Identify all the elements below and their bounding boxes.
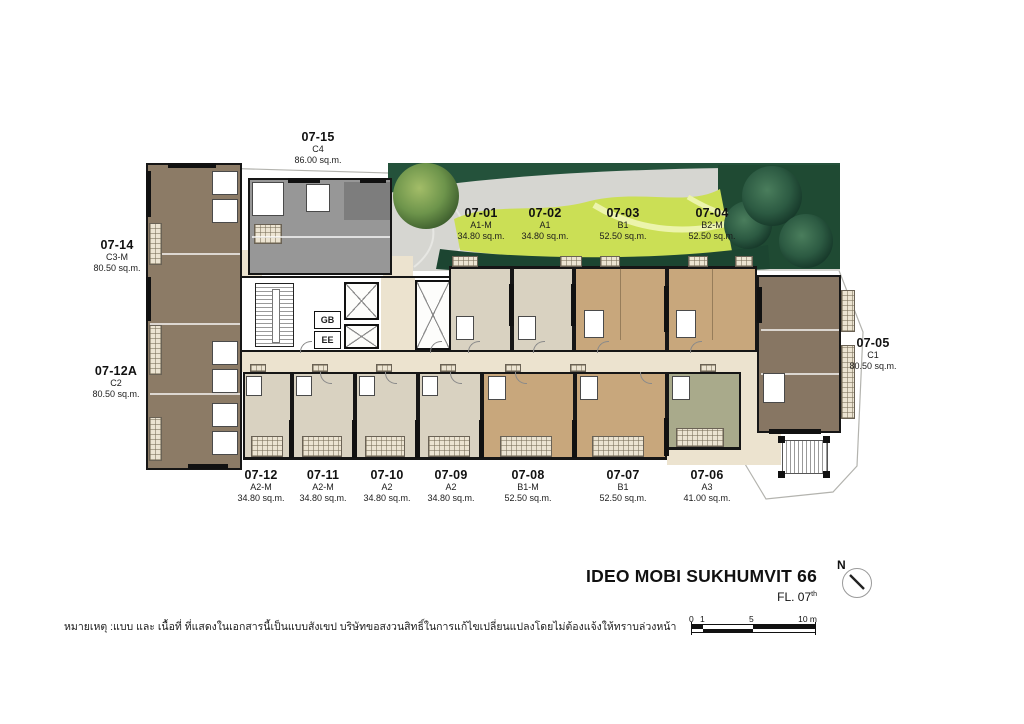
bathroom xyxy=(676,310,696,338)
elevator-passenger xyxy=(415,280,451,350)
unit-type: C1 xyxy=(825,350,921,361)
scale-tick xyxy=(691,622,692,635)
ac-ledge xyxy=(505,364,521,372)
room-gb: GB xyxy=(314,311,341,329)
unit-label-07-14: 07-14 C3-M 80.50 sq.m. xyxy=(69,238,165,274)
unit-block-07-14-07-12A xyxy=(146,163,242,470)
lift-lobby xyxy=(381,278,415,350)
bathroom xyxy=(456,316,474,340)
unit-label-07-08: 07-08 B1-M 52.50 sq.m. xyxy=(480,468,576,504)
unit-id: 07-04 xyxy=(664,206,760,220)
party-wall xyxy=(664,286,669,332)
room-ee-label: EE xyxy=(321,335,333,345)
unit-type: B1 xyxy=(575,220,671,231)
bathroom xyxy=(246,376,262,396)
unit-type: A3 xyxy=(659,482,755,493)
bathroom xyxy=(212,403,238,427)
service-core: GB EE xyxy=(240,276,452,352)
stairwell xyxy=(255,283,294,347)
balcony xyxy=(500,436,552,457)
room-divider xyxy=(712,268,713,340)
ac-ledge xyxy=(250,364,266,372)
unit-id: 07-03 xyxy=(575,206,671,220)
unit-area: 52.50 sq.m. xyxy=(575,231,671,242)
bathroom xyxy=(359,376,375,396)
unit-id: 07-08 xyxy=(480,468,576,482)
bathroom xyxy=(422,376,438,396)
balcony xyxy=(149,417,162,461)
ac-ledge xyxy=(688,256,708,267)
stair-footing xyxy=(823,436,830,443)
unit-type: C2 xyxy=(68,378,164,389)
balcony xyxy=(251,436,283,457)
unit-label-07-07: 07-07 B1 52.50 sq.m. xyxy=(575,468,671,504)
stair-footing xyxy=(823,471,830,478)
party-wall xyxy=(509,284,514,326)
ac-ledge xyxy=(312,364,328,372)
unit-area: 80.50 sq.m. xyxy=(68,389,164,400)
unit-label-07-12A: 07-12A C2 80.50 sq.m. xyxy=(68,364,164,400)
unit-area: 52.50 sq.m. xyxy=(480,493,576,504)
scale-seg xyxy=(692,625,703,629)
unit-id: 07-12A xyxy=(68,364,164,378)
unit-type: B2-M xyxy=(664,220,760,231)
bathroom xyxy=(252,182,284,216)
unit-id: 07-15 xyxy=(270,130,366,144)
floorplan-page: GB EE xyxy=(0,0,1024,724)
room-divider xyxy=(620,268,621,340)
unit-type: C3-M xyxy=(69,252,165,263)
scale-bar-body xyxy=(691,624,816,633)
unit-label-07-05: 07-05 C1 80.50 sq.m. xyxy=(825,336,921,372)
room-divider xyxy=(252,236,390,238)
unit-area: 86.00 sq.m. xyxy=(270,155,366,166)
north-label-n: N xyxy=(837,558,846,572)
bathroom xyxy=(763,373,785,403)
bathroom xyxy=(212,369,238,393)
wall xyxy=(288,178,320,183)
ac-ledge xyxy=(700,364,716,372)
bathroom xyxy=(672,376,690,400)
balcony xyxy=(302,436,342,457)
unit-area: 52.50 sq.m. xyxy=(664,231,760,242)
unit-label-07-06: 07-06 A3 41.00 sq.m. xyxy=(659,468,755,504)
room-ee: EE xyxy=(314,331,341,349)
scale-tick xyxy=(815,622,816,635)
ac-ledge xyxy=(452,256,478,267)
ac-ledge xyxy=(600,256,620,267)
scale-1: 1 xyxy=(700,614,705,624)
ac-ledge xyxy=(560,256,582,267)
stair-footing xyxy=(778,436,785,443)
bathroom xyxy=(212,171,238,195)
scale-seg xyxy=(703,629,753,633)
room-dark xyxy=(344,182,390,220)
bathroom xyxy=(306,184,330,212)
bathroom xyxy=(580,376,598,400)
party-wall xyxy=(415,420,420,458)
floor-sup: th xyxy=(811,591,817,598)
wall xyxy=(757,287,762,323)
balcony xyxy=(592,436,644,457)
party-wall xyxy=(289,420,294,458)
bathroom xyxy=(212,199,238,223)
bathroom xyxy=(212,341,238,365)
unit-id: 07-07 xyxy=(575,468,671,482)
unit-label-07-15: 07-15 C4 86.00 sq.m. xyxy=(270,130,366,166)
unit-type: B1-M xyxy=(480,482,576,493)
north-arrow: N xyxy=(834,556,880,604)
room-gb-label: GB xyxy=(321,315,335,325)
wall xyxy=(360,178,386,183)
bathroom xyxy=(518,316,536,340)
bathroom xyxy=(296,376,312,396)
unit-id: 07-05 xyxy=(825,336,921,350)
party-wall xyxy=(479,420,484,458)
balcony xyxy=(428,436,470,457)
unit-area: 52.50 sq.m. xyxy=(575,493,671,504)
unit-area: 80.50 sq.m. xyxy=(69,263,165,274)
room-divider xyxy=(150,323,240,325)
balcony xyxy=(365,436,405,457)
wall xyxy=(146,277,151,321)
walkway-bottom-right xyxy=(667,450,741,465)
unit-id: 07-14 xyxy=(69,238,165,252)
bathroom xyxy=(584,310,604,338)
party-wall xyxy=(664,418,669,456)
unit-label-07-03: 07-03 B1 52.50 sq.m. xyxy=(575,206,671,242)
ac-ledge xyxy=(254,224,282,244)
ac-ledge xyxy=(735,256,753,267)
unit-type: C4 xyxy=(270,144,366,155)
party-wall xyxy=(571,284,576,326)
balcony xyxy=(841,290,855,332)
unit-type: B1 xyxy=(575,482,671,493)
stair-footing xyxy=(778,471,785,478)
ac-ledge xyxy=(376,364,392,372)
unit-label-07-04: 07-04 B2-M 52.50 sq.m. xyxy=(664,206,760,242)
scale-5: 5 xyxy=(749,614,754,624)
elevator xyxy=(344,282,379,320)
unit-id: 07-06 xyxy=(659,468,755,482)
room-divider xyxy=(761,329,839,331)
disclaimer-note: หมายเหตุ :แบบ และ เนื้อที่ ที่แสดงในเอกส… xyxy=(64,618,676,635)
scale-bar: 0 1 5 10 m xyxy=(691,614,817,636)
party-wall xyxy=(352,420,357,458)
ac-ledge xyxy=(440,364,456,372)
ac-ledge xyxy=(570,364,586,372)
bathroom xyxy=(212,431,238,455)
wall xyxy=(769,429,821,434)
unit-block-07-15 xyxy=(248,178,392,275)
elevator xyxy=(344,324,379,349)
wall xyxy=(168,163,216,168)
wall xyxy=(146,171,151,217)
bathroom xyxy=(488,376,506,400)
floor-label: FL. 07th xyxy=(586,590,817,604)
party-wall xyxy=(572,420,577,458)
unit-area: 80.50 sq.m. xyxy=(825,361,921,372)
stair-rail xyxy=(272,289,280,343)
title-block: IDEO MOBI SUKHUMVIT 66 FL. 07th xyxy=(586,566,817,604)
fire-stair xyxy=(782,440,828,474)
tree xyxy=(779,214,833,268)
scale-seg xyxy=(753,625,815,629)
balcony xyxy=(676,428,724,447)
project-title: IDEO MOBI SUKHUMVIT 66 xyxy=(586,566,817,587)
unit-area: 41.00 sq.m. xyxy=(659,493,755,504)
floor-text: FL. 07 xyxy=(777,590,811,604)
